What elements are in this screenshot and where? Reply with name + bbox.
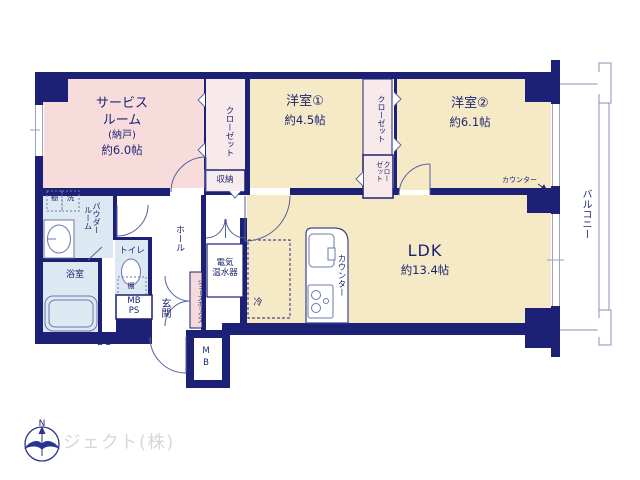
powder-room-label: パウダールーム — [78, 199, 100, 237]
counter-w2-label: カウンター — [502, 176, 537, 184]
water-heater-label: 電気 温水器 — [207, 258, 243, 278]
service-room-label-1: サービス — [72, 96, 172, 111]
service-room-label-2: ルーム — [72, 113, 172, 128]
shuno-label: 収納 — [205, 175, 245, 185]
shoe-box-label: シューズボックス — [190, 274, 202, 328]
mb-label: MB — [201, 346, 215, 380]
toilet-label: トイレ — [112, 246, 152, 256]
company-watermark: ジェクト(株) — [63, 433, 175, 454]
fridge-label: 冷 — [249, 298, 267, 309]
closet-upper-label: クローゼット — [370, 87, 385, 151]
western2-size: 約6.1帖 — [420, 116, 520, 130]
ldk-label: LDK — [375, 242, 475, 261]
compass-n-label: N — [35, 419, 49, 430]
shelf-powder-label: 棚 — [47, 194, 62, 203]
shelf-toilet-label: 棚 — [122, 282, 140, 290]
washer-label: 洗 — [62, 194, 79, 203]
western1-size: 約4.5帖 — [255, 114, 355, 128]
service-room-note: (納戸) — [72, 130, 172, 142]
compass-north — [24, 426, 60, 461]
closet-service-label: クローゼット — [217, 94, 233, 168]
hall-label: ホール — [169, 220, 183, 256]
bathroom-label: 浴室 — [50, 270, 100, 281]
floorplan-drawing — [0, 0, 640, 480]
counter-kitchen-label: カウンター — [331, 248, 345, 302]
balcony-label: バルコニー — [573, 183, 590, 245]
ds-label: DS — [97, 337, 112, 348]
closet-lower-label: クローゼット — [366, 159, 390, 183]
western1-label: 洋室① — [255, 94, 355, 109]
entrance-label: 玄関 — [153, 294, 169, 322]
ldk-size: 約13.4帖 — [375, 264, 475, 278]
floorplan-image: サービス ルーム (納戸) 約6.0帖 洋室① 約4.5帖 洋室② 約6.1帖 … — [0, 0, 640, 480]
mbps-label: MB PS — [116, 296, 152, 316]
service-room-size: 約6.0帖 — [72, 144, 172, 158]
western2-label: 洋室② — [420, 96, 520, 111]
